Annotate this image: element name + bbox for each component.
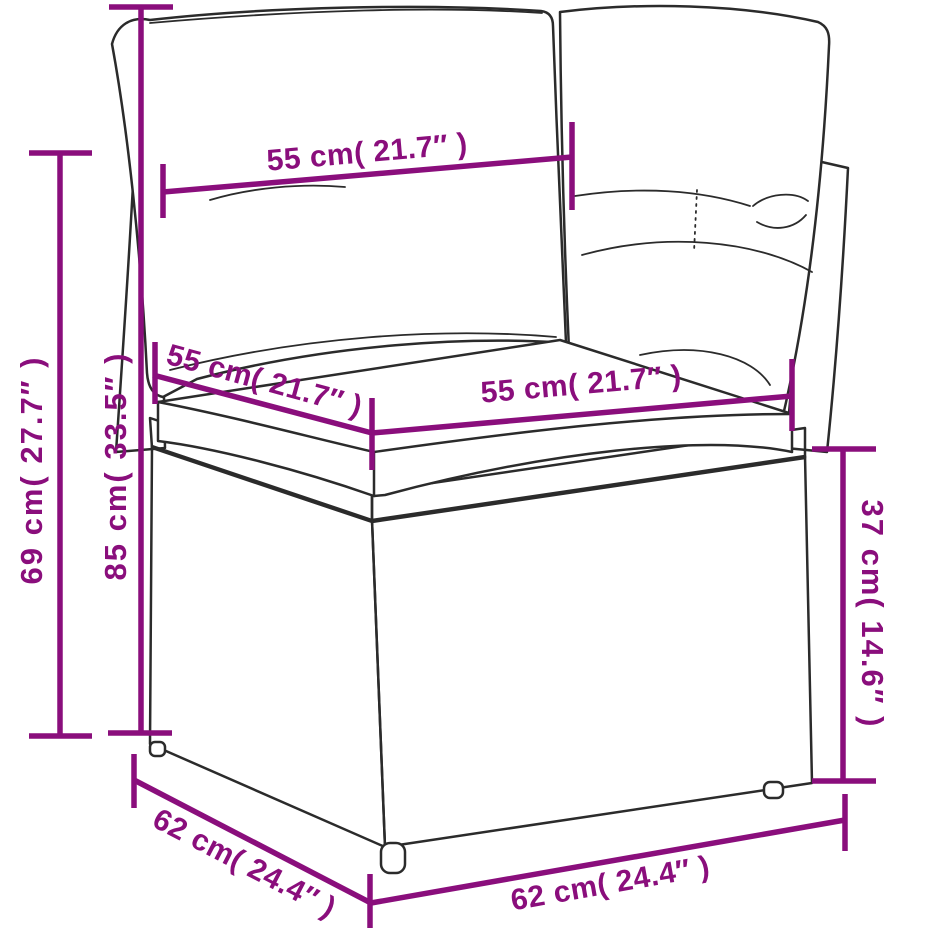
dimension-base-height: 37 cm( 14.6″ )	[812, 449, 890, 781]
dimension-label: 37 cm( 14.6″ )	[855, 500, 890, 729]
left-back-cushion	[112, 7, 566, 397]
dimension-back-frame-height: 69 cm( 27.7″ )	[14, 153, 92, 736]
base-side-face	[150, 446, 385, 847]
sofa-foot-corner	[381, 843, 405, 873]
dimension-label: 62 cm( 24.4″ )	[147, 802, 341, 924]
dimension-diagram: 55 cm( 21.7″ ) 55 cm( 21.7″ ) 55 cm( 21.…	[0, 0, 930, 930]
base-front-face	[372, 456, 812, 847]
sofa-foot-left	[150, 742, 165, 756]
dimension-label: 85 cm( 33.5″ )	[98, 352, 133, 581]
dimension-label: 69 cm( 27.7″ )	[14, 356, 49, 585]
dimension-base-side-depth: 62 cm( 24.4″ )	[134, 754, 371, 928]
sofa-line-art	[112, 6, 848, 873]
sofa-foot-right	[764, 782, 783, 798]
